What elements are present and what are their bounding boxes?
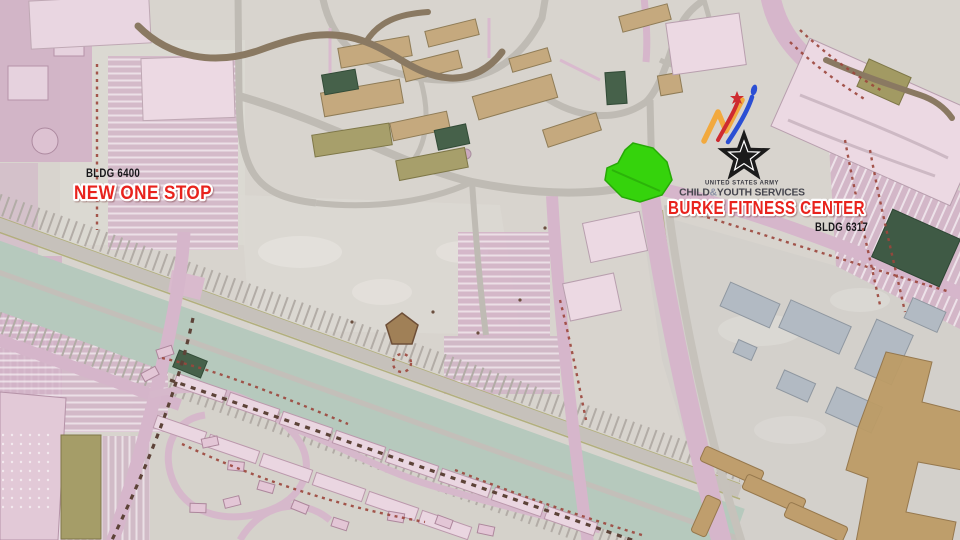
- installation-map: UNITED STATES ARMY CHILD&YOUTH SERVICES …: [0, 0, 960, 540]
- logo-org-text: UNITED STATES ARMY: [705, 180, 779, 187]
- building-pale-upper: [666, 13, 747, 75]
- label-burke-fitness-center: BURKE FITNESS CENTER: [668, 197, 865, 218]
- building-pale-topleft: [29, 0, 151, 49]
- parking-lot-bldg-6400: [108, 55, 238, 250]
- base-map-screenshot: UNITED STATES ARMY CHILD&YOUTH SERVICES …: [0, 0, 960, 540]
- label-new-one-stop: NEW ONE STOP: [74, 183, 212, 204]
- round-building: [32, 128, 58, 154]
- label-bldg-6400: BLDG 6400: [86, 166, 140, 180]
- building-olive-left: [61, 435, 101, 539]
- label-bldg-6317: BLDG 6317: [815, 222, 868, 234]
